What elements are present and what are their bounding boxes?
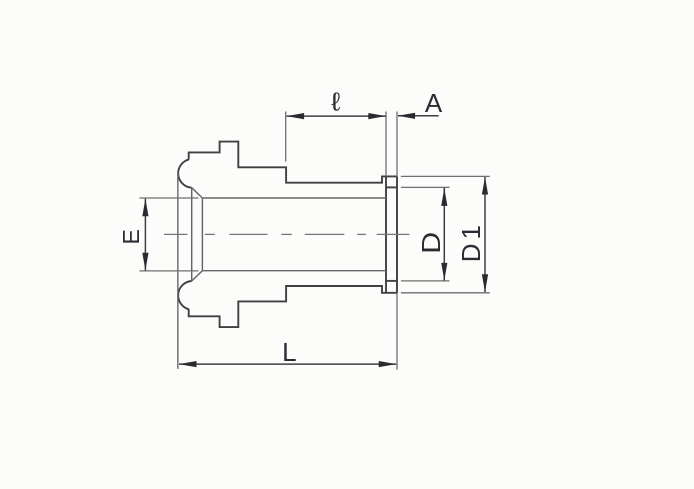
svg-text:A: A (425, 88, 443, 118)
svg-text:D1: D1 (456, 221, 486, 262)
svg-text:L: L (282, 337, 296, 367)
svg-text:D: D (417, 232, 446, 254)
svg-text:ℓ: ℓ (331, 87, 340, 116)
svg-text:E: E (118, 229, 144, 244)
